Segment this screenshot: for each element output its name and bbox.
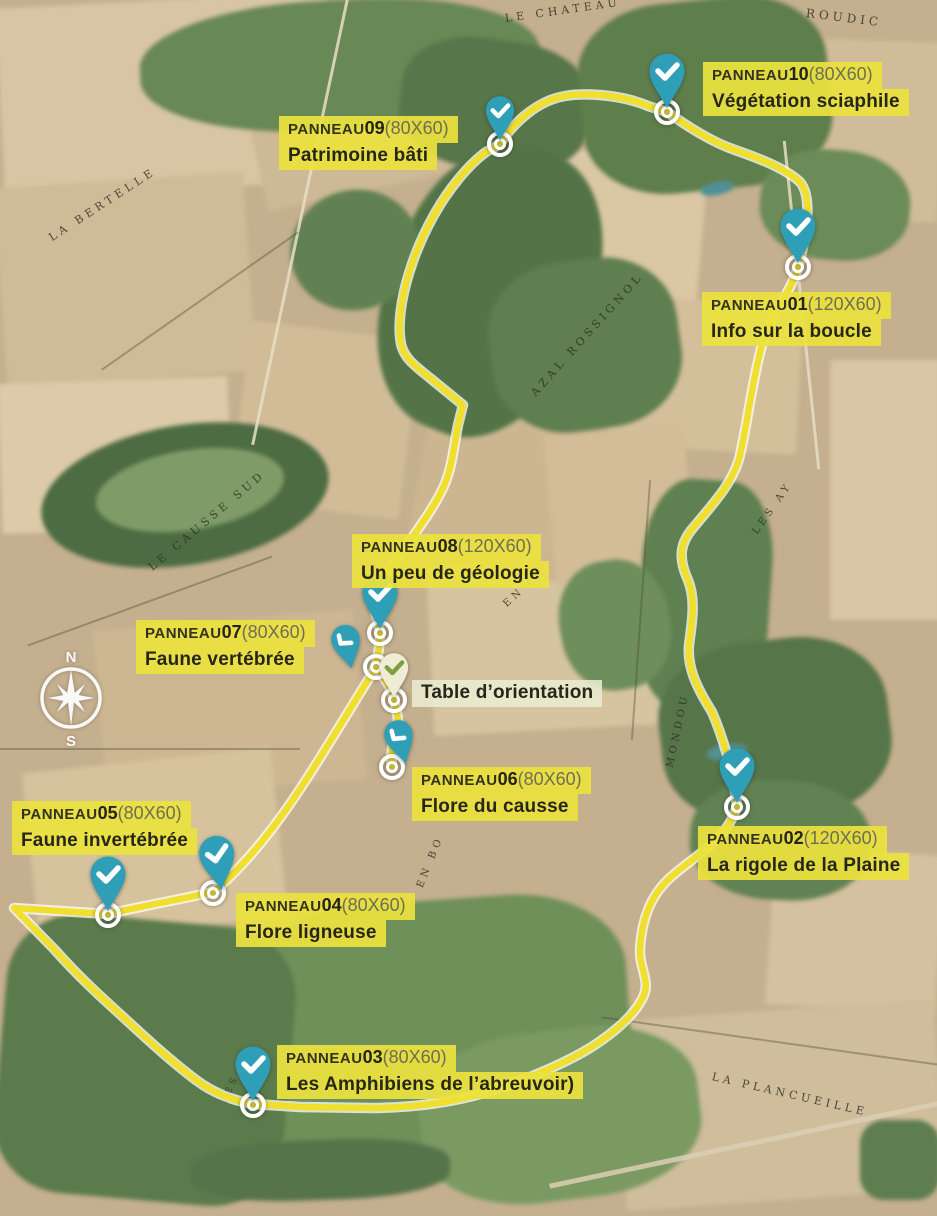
panel-10-title: Végétation sciaphile <box>703 89 909 116</box>
panel-prefix: PANNEAU <box>361 539 438 556</box>
panel-03-heading: PANNEAU 03 (80X60) <box>277 1045 456 1072</box>
panel-08-title: Un peu de géologie <box>352 561 549 588</box>
compass-north-label: N <box>66 649 77 666</box>
panel-05-pin <box>86 855 130 913</box>
panel-number: 03 <box>363 1047 383 1067</box>
panel-09-pin <box>482 95 518 142</box>
panel-size: (120X60) <box>808 294 882 314</box>
panel-06-label: PANNEAU 06 (80X60) Flore du causse <box>412 767 591 821</box>
panel-size: (80X60) <box>383 1047 447 1067</box>
panel-09-heading: PANNEAU 09 (80X60) <box>279 116 458 143</box>
panel-number: 07 <box>222 622 242 642</box>
panel-size: (80X60) <box>342 895 406 915</box>
panel-prefix: PANNEAU <box>711 297 788 314</box>
panel-prefix: PANNEAU <box>21 806 98 823</box>
panel-07-label: PANNEAU 07 (80X60) Faune vertébrée <box>136 620 315 674</box>
compass-rose: N S <box>28 648 114 748</box>
panel-size: (80X60) <box>118 803 182 823</box>
panel-03-title: Les Amphibiens de l’abreuvoir) <box>277 1072 583 1099</box>
panel-size: (120X60) <box>458 536 532 556</box>
panel-number: 06 <box>498 769 518 789</box>
panel-06-heading: PANNEAU 06 (80X60) <box>412 767 591 794</box>
panel-02-title: La rigole de la Plaine <box>698 853 909 880</box>
panel-07-heading: PANNEAU 07 (80X60) <box>136 620 315 647</box>
panel-number: 09 <box>365 118 385 138</box>
panel-prefix: PANNEAU <box>712 67 789 84</box>
panel-07-title: Faune vertébrée <box>136 647 304 674</box>
panel-number: 01 <box>788 294 808 314</box>
panel-08-label: PANNEAU 08 (120X60) Un peu de géologie <box>352 534 549 588</box>
panel-prefix: PANNEAU <box>245 898 322 915</box>
compass-south-label: S <box>66 733 76 748</box>
panel-10-pin <box>645 52 689 110</box>
panel-number: 04 <box>322 895 342 915</box>
panel-01-pin <box>776 207 820 265</box>
panel-prefix: PANNEAU <box>707 831 784 848</box>
panel-size: (80X60) <box>518 769 582 789</box>
panel-02-label: PANNEAU 02 (120X60) La rigole de la Plai… <box>698 826 909 880</box>
panel-04-heading: PANNEAU 04 (80X60) <box>236 893 415 920</box>
panel-size: (80X60) <box>385 118 449 138</box>
panel-05-heading: PANNEAU 05 (80X60) <box>12 801 191 828</box>
panel-09-title: Patrimoine bâti <box>279 143 437 170</box>
panel-03-pin <box>231 1045 275 1103</box>
panel-10-heading: PANNEAU 10 (80X60) <box>703 62 882 89</box>
panel-03-label: PANNEAU 03 (80X60) Les Amphibiens de l’a… <box>277 1045 583 1099</box>
panel-size: (120X60) <box>804 828 878 848</box>
panel-05-label: PANNEAU 05 (80X60) Faune invertébrée <box>12 801 197 855</box>
table-orientation-label: Table d’orientation <box>412 680 602 707</box>
panel-01-label: PANNEAU 01 (120X60) Info sur la boucle <box>702 292 891 346</box>
panel-prefix: PANNEAU <box>421 772 498 789</box>
trail-route <box>0 0 937 1200</box>
trail-route-halo <box>14 94 807 1108</box>
panel-prefix: PANNEAU <box>145 625 222 642</box>
panel-05-title: Faune invertébrée <box>12 828 197 855</box>
panel-size: (80X60) <box>809 64 873 84</box>
panel-02-heading: PANNEAU 02 (120X60) <box>698 826 887 853</box>
panel-01-title: Info sur la boucle <box>702 319 881 346</box>
panel-08-heading: PANNEAU 08 (120X60) <box>352 534 541 561</box>
panel-number: 05 <box>98 803 118 823</box>
panel-10-label: PANNEAU 10 (80X60) Végétation sciaphile <box>703 62 909 116</box>
table-orientation-pin <box>376 652 412 699</box>
panel-number: 02 <box>784 828 804 848</box>
panel-06-title: Flore du causse <box>412 794 578 821</box>
panel-prefix: PANNEAU <box>288 121 365 138</box>
panel-number: 08 <box>438 536 458 556</box>
panel-prefix: PANNEAU <box>286 1050 363 1067</box>
panel-number: 10 <box>789 64 809 84</box>
panel-size: (80X60) <box>242 622 306 642</box>
panel-01-heading: PANNEAU 01 (120X60) <box>702 292 891 319</box>
panel-04-pin <box>192 832 244 896</box>
panel-04-label: PANNEAU 04 (80X60) Flore ligneuse <box>236 893 415 947</box>
panel-04-title: Flore ligneuse <box>236 920 386 947</box>
panel-09-label: PANNEAU 09 (80X60) Patrimoine bâti <box>279 116 458 170</box>
panel-02-pin <box>715 747 759 805</box>
